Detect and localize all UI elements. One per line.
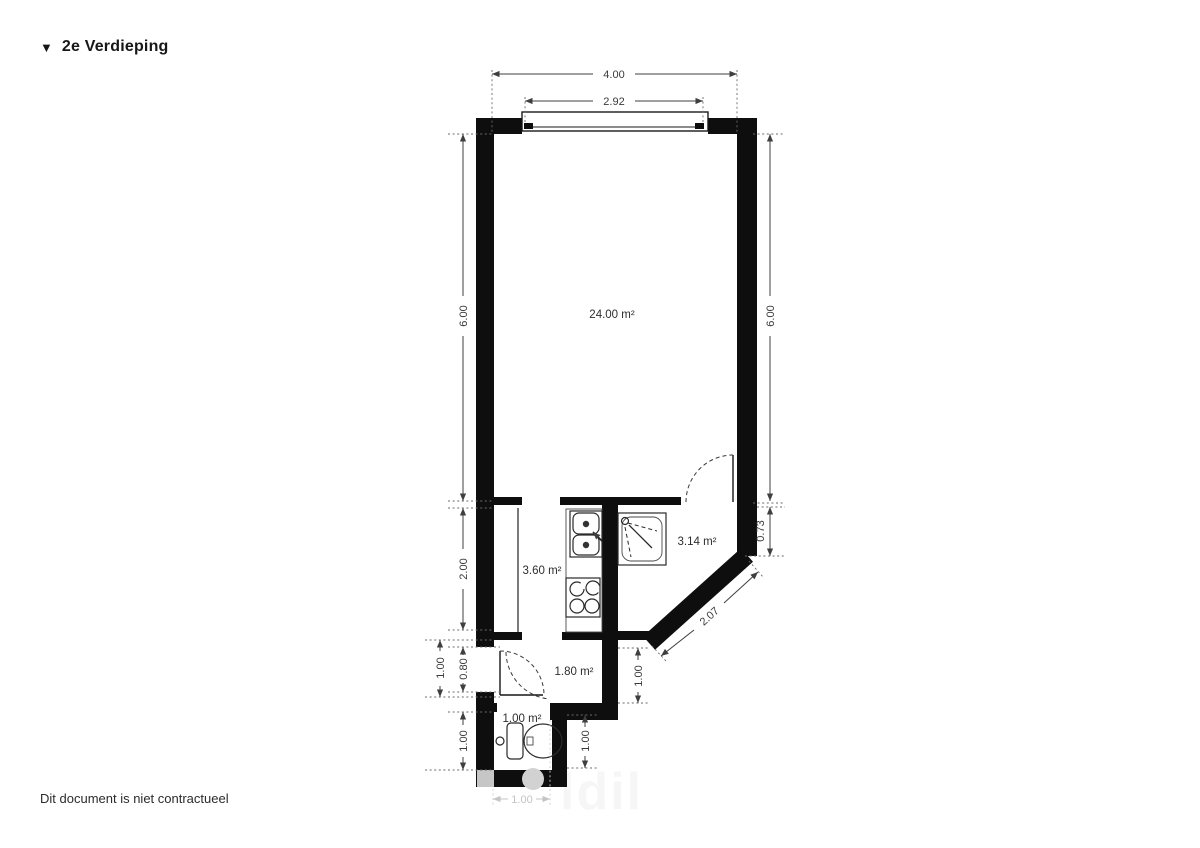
- counter-outline: [566, 509, 602, 632]
- sink: [570, 511, 602, 557]
- wall-right-main: [737, 118, 757, 556]
- dim-entry-door: 0.80: [458, 647, 470, 692]
- floorplan-drawing: 24.00 m² 3.60 m² 3.14 m² 1.80 m² 1.00 m²: [0, 0, 1200, 848]
- dim-toilet-bottom-width-value: 1.00: [511, 794, 532, 806]
- wall-kitchen-bottom-a: [494, 632, 522, 640]
- shower-spray-1: [628, 523, 657, 531]
- door-swing-arc-1: [500, 651, 544, 695]
- dim-left-height: 6.00: [458, 134, 470, 501]
- sink-drain-top: [583, 521, 589, 527]
- burner-3: [570, 599, 584, 613]
- toilet-hinge: [527, 737, 533, 745]
- wall-toilet-top: [476, 703, 497, 712]
- burner-4: [585, 599, 599, 613]
- door-swing-arc: [686, 455, 733, 502]
- sink-drain-bottom: [583, 542, 589, 548]
- dim-toilet-left-height: 1.00: [458, 712, 470, 770]
- window-end-block-right: [695, 123, 704, 129]
- door-entrance: [500, 651, 549, 699]
- wall-toilet-right: [552, 712, 567, 770]
- dim-entry-outer: 1.00: [435, 640, 447, 697]
- wall-kitchen-divider: [602, 505, 618, 703]
- wall-mid-b: [560, 497, 681, 505]
- burner-1: [570, 582, 584, 596]
- stove-outline: [566, 578, 600, 617]
- faucet-arrow: [593, 532, 602, 541]
- dim-toilet-bottom-width: 1.00: [493, 794, 550, 806]
- dim-hall-right-value: 1.00: [633, 665, 645, 686]
- window-end-block-left: [524, 123, 533, 129]
- shower-head-icon: [622, 518, 629, 525]
- wall-mid-a: [494, 497, 522, 505]
- disclaimer-note: Dit document is niet contractueel: [40, 791, 229, 806]
- wall-left-main: [476, 118, 494, 647]
- window-top: [522, 112, 708, 131]
- wall-diagonal: [649, 555, 747, 643]
- dim-hall-right: 1.00: [633, 648, 645, 703]
- dim-kitchen-left-height-value: 2.00: [458, 558, 470, 579]
- kitchen-counter: [566, 509, 603, 632]
- dim-entry-door-value: 0.80: [458, 658, 470, 679]
- dim-total-width: 4.00: [492, 69, 737, 81]
- dim-toilet-left-height-value: 1.00: [458, 730, 470, 751]
- shower-spray-2: [625, 527, 631, 557]
- room-label-living: 24.00 m²: [589, 309, 635, 321]
- shower-stall: [618, 513, 666, 565]
- dim-window-width-value: 2.92: [603, 96, 624, 108]
- room-label-hallway: 1.80 m²: [555, 666, 594, 678]
- dim-entry-outer-value: 1.00: [435, 657, 447, 678]
- dim-left-height-value: 6.00: [458, 305, 470, 326]
- dim-toilet-right-height-value: 1.00: [580, 730, 592, 751]
- dim-right-height: 6.00: [765, 134, 777, 501]
- floorplan-page: ▼ 2e Verdieping ldil: [0, 0, 1200, 848]
- dim-diagonal-wall-value: 2.07: [698, 605, 722, 628]
- walls: [476, 118, 757, 790]
- room-label-shower: 3.14 m²: [678, 536, 717, 548]
- dim-toilet-right-height: 1.00: [580, 715, 592, 768]
- stove: [566, 578, 603, 617]
- dim-window-width: 2.92: [525, 96, 703, 108]
- wall-kitchen-bottom-b: [562, 632, 602, 640]
- column-gray-circle: [522, 768, 544, 790]
- dim-kitchen-left-height: 2.00: [458, 508, 470, 630]
- dim-right-lower-value: 0.73: [755, 520, 767, 541]
- dim-right-height-value: 6.00: [765, 305, 777, 326]
- window-frame: [522, 112, 708, 131]
- door-shower-room: [686, 455, 733, 502]
- door-swing-arc-2: [506, 652, 549, 699]
- dim-right-lower: 0.73: [755, 507, 770, 556]
- shower-tray: [618, 513, 666, 565]
- dim-total-width-value: 4.00: [603, 69, 624, 81]
- room-label-toilet: 1.00 m²: [503, 713, 542, 725]
- toilet-cistern: [507, 723, 523, 759]
- utility-block-gray: [477, 770, 494, 787]
- room-label-kitchen: 3.60 m²: [523, 565, 562, 577]
- toilet-flush-button: [496, 737, 504, 745]
